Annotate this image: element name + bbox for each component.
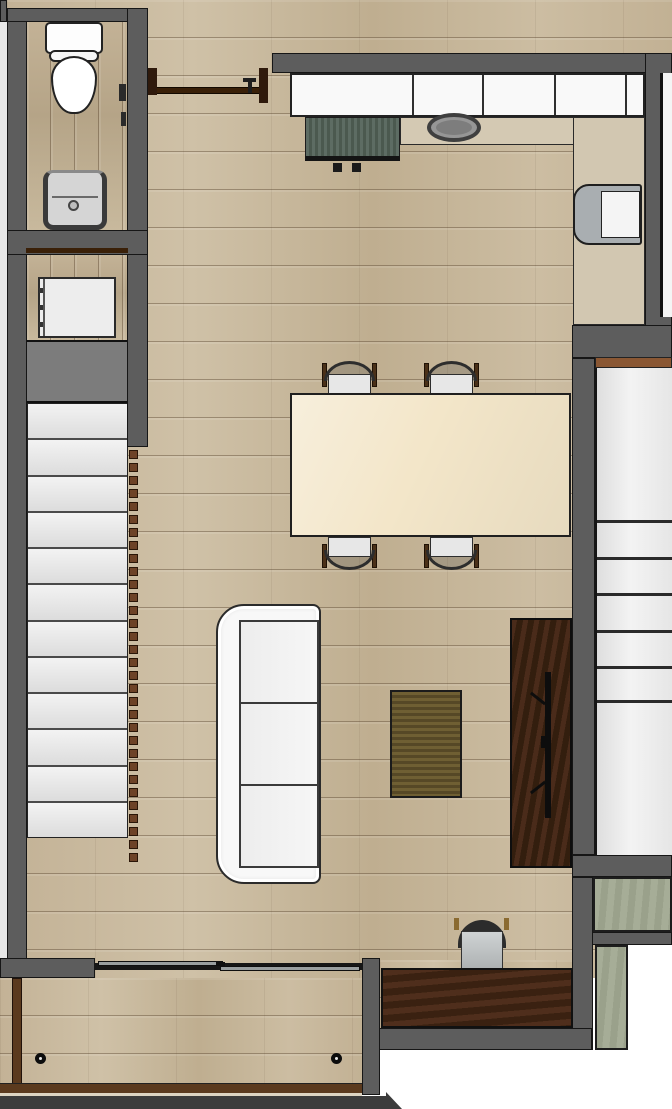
baluster [129, 502, 138, 511]
balcony-edge-bevel [386, 1092, 402, 1109]
tv-mount [541, 736, 546, 748]
balcony-edge-band [0, 1096, 386, 1109]
headboard-strip [595, 357, 672, 368]
baluster [129, 749, 138, 758]
wall-bedroom-top [572, 325, 672, 358]
shower-seat-line [52, 196, 98, 198]
stair-tread [28, 511, 127, 547]
closet-door-line [43, 279, 45, 336]
stair-landing [27, 340, 128, 403]
dining-chair [322, 361, 377, 394]
panel-divider [597, 700, 672, 703]
shower-drain [68, 200, 79, 211]
stair-tread [28, 547, 127, 583]
stair-tread [28, 692, 127, 728]
kitchen-cabinet-row [290, 73, 645, 117]
baluster [129, 723, 138, 732]
stair-railing [129, 450, 139, 865]
baluster [129, 632, 138, 641]
wall-bathroom-right [127, 8, 148, 447]
baluster [129, 710, 138, 719]
stair-tread [28, 765, 127, 801]
baluster [129, 736, 138, 745]
wall-bedroom-bottom [572, 855, 672, 877]
neighbor-room-sliver [660, 73, 672, 317]
dining-chair [424, 361, 479, 394]
adjacent-room-panels [595, 368, 672, 855]
stair-tread [28, 801, 127, 837]
panel-divider [597, 520, 672, 523]
baluster [129, 671, 138, 680]
baluster [129, 606, 138, 615]
stair-tread [28, 583, 127, 619]
closet-door-header [26, 248, 128, 253]
baluster [129, 684, 138, 693]
baluster [129, 528, 138, 537]
baluster [129, 489, 138, 498]
baluster [129, 853, 138, 862]
panel-divider [597, 593, 672, 596]
chair-seat [328, 374, 371, 394]
office-chair-arm-left [454, 918, 459, 930]
stair-tread [28, 656, 127, 692]
wall-balcony-right [362, 958, 380, 1095]
cooktop-knob [333, 163, 342, 172]
dining-table [290, 393, 571, 537]
baluster [129, 658, 138, 667]
baluster [129, 827, 138, 836]
baluster [129, 593, 138, 602]
stair-tread [28, 728, 127, 764]
closet-cabinet [38, 277, 116, 338]
office-chair-seat [461, 931, 503, 969]
spotlight [331, 1053, 342, 1064]
baluster [129, 619, 138, 628]
baluster [129, 775, 138, 784]
floor-plan [0, 0, 672, 1109]
exterior-white-right [628, 945, 672, 1050]
sliding-door-panel-right [220, 966, 360, 971]
dining-chair [322, 537, 377, 570]
baluster [129, 515, 138, 524]
closet-hinge-dot [39, 322, 43, 327]
wall-bottomleft-stub [0, 958, 95, 978]
cooktop-knob [352, 163, 361, 172]
bathroom-door-hinge [121, 112, 126, 126]
baluster [129, 762, 138, 771]
wall-desk-bottom [370, 1028, 592, 1050]
baluster [129, 541, 138, 550]
baluster [129, 554, 138, 563]
wall-corner-topleft [0, 0, 7, 22]
wall-bedroom-left [572, 358, 595, 855]
staircase [27, 403, 128, 838]
panel-divider [597, 557, 672, 560]
entry-door-jamb-left [148, 68, 157, 95]
baluster [129, 580, 138, 589]
cabinet-divider [554, 75, 556, 115]
dining-chair [424, 537, 479, 570]
sofa-cushions [239, 620, 319, 868]
cooktop-unit [305, 117, 400, 158]
chair-seat [430, 374, 473, 394]
office-chair-arm-right [504, 918, 509, 930]
baluster [129, 463, 138, 472]
spotlight [35, 1053, 46, 1064]
chair-seat [430, 537, 473, 557]
balcony-post [12, 978, 22, 1084]
wall-kitchen-top [272, 53, 672, 73]
balcony-floor [0, 978, 362, 1085]
closet-hinge-dot [39, 305, 43, 310]
concrete-ledge-lower [595, 945, 628, 1050]
baluster [129, 450, 138, 459]
baluster [129, 645, 138, 654]
concrete-ledge-upper [593, 877, 672, 932]
coffee-table [390, 690, 462, 798]
sofa-cushion [239, 620, 319, 704]
wall-desk-right [572, 877, 593, 1050]
baluster [129, 840, 138, 849]
wall-left [7, 8, 27, 978]
stair-tread [28, 404, 127, 438]
cooktop-base [305, 156, 400, 161]
bathroom-door-handle [119, 84, 126, 101]
panel-divider [597, 630, 672, 633]
sliding-door-handle [216, 962, 225, 966]
panel-divider [597, 666, 672, 669]
baluster [129, 814, 138, 823]
stair-tread [28, 438, 127, 474]
entry-door-handle-2 [248, 82, 252, 93]
cabinet-divider [625, 75, 627, 115]
stair-tread [28, 620, 127, 656]
baluster [129, 788, 138, 797]
stair-tread [28, 475, 127, 511]
baluster [129, 476, 138, 485]
sofa-cushion [239, 702, 319, 786]
sliding-door-panel-left [98, 961, 223, 966]
baluster [129, 567, 138, 576]
balcony-trim [0, 1083, 362, 1093]
kitchen-sink-basin [436, 120, 472, 135]
cabinet-divider [482, 75, 484, 115]
cabinet-divider [412, 75, 414, 115]
sofa-cushion [239, 784, 319, 868]
exterior-white-bottom [380, 1050, 672, 1109]
baluster [129, 697, 138, 706]
baluster [129, 801, 138, 810]
chair-seat [328, 537, 371, 557]
closet-hinge-dot [39, 288, 43, 293]
fridge-door-panel [601, 191, 640, 238]
entry-door-jamb-right [259, 68, 268, 103]
desk [381, 968, 573, 1028]
